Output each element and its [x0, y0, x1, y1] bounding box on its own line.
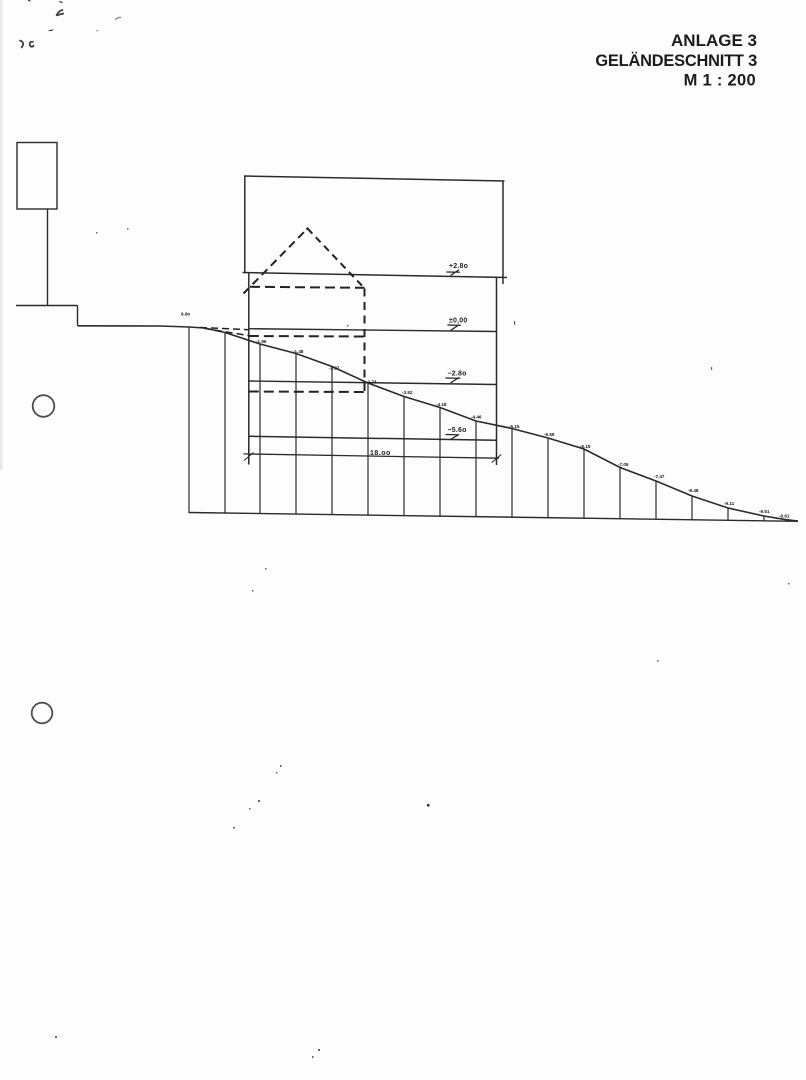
- svg-text:-3.52: -3.52: [402, 390, 413, 395]
- svg-text:-9.11: -9.11: [724, 501, 735, 506]
- svg-text:-6.19: -6.19: [580, 444, 591, 449]
- svg-text:-5.59: -5.59: [544, 432, 555, 437]
- svg-text:GELÄNDESCHNITT 3: GELÄNDESCHNITT 3: [595, 52, 757, 70]
- svg-text:ANLAGE 3: ANLAGE 3: [671, 31, 757, 50]
- svg-text:−5.6o: −5.6o: [448, 427, 467, 434]
- svg-text:M 1 : 200: M 1 : 200: [684, 72, 756, 90]
- svg-text:-4.46: -4.46: [471, 415, 482, 420]
- svg-text:-9.51: -9.51: [759, 509, 770, 514]
- svg-text:-5.15: -5.15: [509, 424, 520, 429]
- svg-text:-1.96: -1.96: [256, 339, 267, 344]
- svg-text:-2.27: -2.27: [329, 366, 340, 371]
- svg-text:-4.18: -4.18: [436, 402, 447, 407]
- svg-text:-9.61: -9.61: [779, 514, 790, 519]
- svg-text:-2.73: -2.73: [366, 380, 377, 385]
- svg-text:−2.8o: −2.8o: [448, 370, 467, 377]
- svg-text:6.9o: 6.9o: [181, 312, 190, 317]
- svg-text:±0,00: ±0,00: [449, 318, 467, 325]
- svg-text:+2.8o: +2.8o: [449, 263, 468, 270]
- svg-text:-7.47: -7.47: [654, 474, 665, 479]
- svg-text:-1.48: -1.48: [293, 349, 304, 354]
- svg-text:18.oo: 18.oo: [370, 450, 391, 457]
- svg-text:-7.05: -7.05: [618, 462, 629, 467]
- svg-text:-8.48: -8.48: [688, 488, 699, 493]
